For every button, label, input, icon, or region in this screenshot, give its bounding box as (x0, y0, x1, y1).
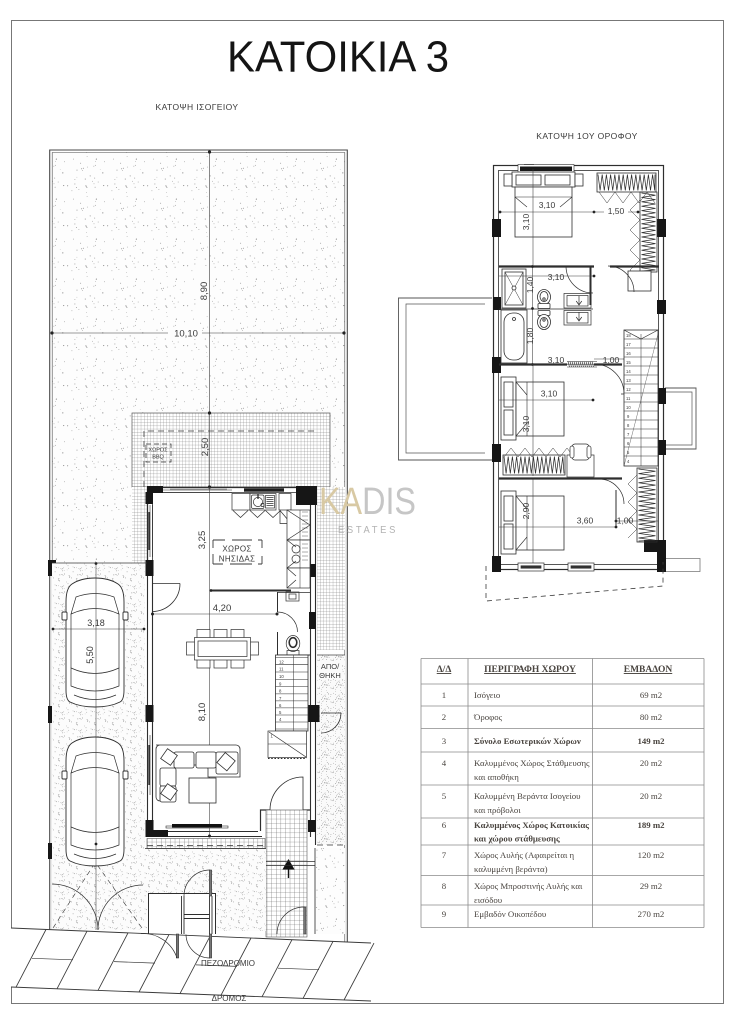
svg-text:ΠΕΡΙΓΡΑΦΗ ΧΩΡΟΥ: ΠΕΡΙΓΡΑΦΗ ΧΩΡΟΥ (484, 665, 576, 675)
svg-text:Σύνολο Εσωτερικών Χώρων: Σύνολο Εσωτερικών Χώρων (474, 736, 581, 746)
svg-text:149 m2: 149 m2 (637, 736, 665, 746)
svg-text:KADIS: KADIS (319, 481, 416, 523)
svg-text:ΚΑΤΟΨΗ ΙΣΟΓΕΙΟΥ: ΚΑΤΟΨΗ ΙΣΟΓΕΙΟΥ (156, 102, 239, 112)
svg-text:3,10: 3,10 (521, 415, 531, 432)
svg-text:120 m2: 120 m2 (638, 850, 665, 860)
svg-text:ΝΗΣΙΔΑΣ: ΝΗΣΙΔΑΣ (219, 555, 255, 564)
svg-text:1,00: 1,00 (603, 355, 620, 365)
svg-text:BBQ: BBQ (152, 455, 164, 461)
svg-text:10: 10 (279, 674, 284, 679)
svg-text:3,25: 3,25 (197, 531, 208, 550)
svg-text:29 m2: 29 m2 (640, 881, 662, 891)
svg-text:Εμβαδόν Οικοπέδου: Εμβαδόν Οικοπέδου (474, 909, 546, 919)
svg-text:8,90: 8,90 (199, 282, 210, 301)
svg-text:ΧΩΡΟΣ: ΧΩΡΟΣ (222, 545, 251, 554)
svg-text:1,80: 1,80 (525, 327, 535, 344)
svg-text:και πρόβολοι: και πρόβολοι (474, 805, 521, 815)
svg-text:ΔΡΟΜΟΣ: ΔΡΟΜΟΣ (212, 994, 247, 1003)
svg-text:80 m2: 80 m2 (640, 712, 662, 722)
svg-text:3,60: 3,60 (577, 516, 594, 526)
svg-text:69 m2: 69 m2 (640, 690, 662, 700)
svg-text:1: 1 (442, 690, 446, 700)
svg-text:3,10: 3,10 (548, 272, 565, 282)
svg-text:3,10: 3,10 (521, 213, 531, 230)
svg-text:ΑΠΟ/: ΑΠΟ/ (321, 662, 340, 671)
svg-text:2,50: 2,50 (200, 438, 211, 457)
svg-text:9: 9 (442, 909, 447, 919)
svg-text:και αποθήκη: και αποθήκη (474, 772, 519, 782)
svg-text:3,10: 3,10 (541, 389, 558, 399)
svg-text:Χώρος Μπροστινής Αυλής και: Χώρος Μπροστινής Αυλής και (474, 881, 583, 891)
svg-text:Καλυμμένος Χώρος Στάθμευσης: Καλυμμένος Χώρος Στάθμευσης (474, 758, 590, 768)
svg-text:12: 12 (279, 660, 284, 665)
svg-text:8,10: 8,10 (197, 703, 208, 722)
svg-text:εισόδου: εισόδου (474, 895, 502, 905)
svg-text:6: 6 (442, 820, 447, 830)
svg-text:13: 13 (626, 378, 631, 383)
svg-text:ΘΗΚΗ: ΘΗΚΗ (319, 671, 341, 680)
svg-text:5: 5 (442, 791, 447, 801)
svg-text:καλυμμένη βεράντα): καλυμμένη βεράντα) (474, 864, 548, 874)
svg-text:4: 4 (442, 758, 447, 768)
svg-text:ESTATES: ESTATES (338, 524, 398, 536)
svg-text:270 m2: 270 m2 (638, 909, 665, 919)
svg-text:ΚΑΤΟΙΚΙΑ 3: ΚΑΤΟΙΚΙΑ 3 (227, 33, 449, 82)
svg-text:Όροφος: Όροφος (473, 712, 503, 722)
svg-text:20 m2: 20 m2 (640, 758, 662, 768)
svg-text:8: 8 (442, 881, 447, 891)
svg-text:5,50: 5,50 (85, 646, 95, 664)
svg-text:Καλυμμένος Χώρος Κατοικίας: Καλυμμένος Χώρος Κατοικίας (474, 820, 589, 830)
svg-text:ΧΩΡΟΣ: ΧΩΡΟΣ (148, 448, 168, 454)
svg-text:2,90: 2,90 (521, 502, 531, 519)
svg-text:14: 14 (626, 369, 631, 374)
svg-text:17: 17 (626, 342, 631, 347)
svg-text:και χώρου στάθμευσης: και χώρου στάθμευσης (474, 834, 560, 844)
svg-text:20 m2: 20 m2 (640, 791, 662, 801)
svg-text:10: 10 (626, 405, 631, 410)
svg-text:3: 3 (442, 736, 447, 746)
svg-text:3,10: 3,10 (539, 200, 556, 210)
svg-text:7: 7 (442, 850, 447, 860)
svg-text:11: 11 (279, 667, 284, 672)
svg-text:Χώρος Αυλής (Αφαιρείται η: Χώρος Αυλής (Αφαιρείται η (474, 850, 575, 860)
svg-text:Ισόγειο: Ισόγειο (474, 690, 501, 700)
svg-text:Δ/Δ: Δ/Δ (437, 665, 452, 675)
svg-text:15: 15 (626, 360, 631, 365)
svg-text:ΚΑΤΟΨΗ 1ΟΥ ΟΡΟΦΟΥ: ΚΑΤΟΨΗ 1ΟΥ ΟΡΟΦΟΥ (536, 131, 637, 141)
svg-text:Καλυμμένη Βεράντα Ισογείου: Καλυμμένη Βεράντα Ισογείου (474, 791, 581, 801)
svg-text:4,20: 4,20 (213, 603, 232, 614)
svg-text:3,10: 3,10 (548, 355, 565, 365)
svg-text:1,50: 1,50 (608, 206, 625, 216)
svg-text:ΕΜΒΑΔΟΝ: ΕΜΒΑΔΟΝ (624, 665, 673, 675)
svg-text:2: 2 (442, 712, 446, 722)
svg-text:16: 16 (626, 351, 631, 356)
svg-text:12: 12 (626, 387, 631, 392)
svg-text:189 m2: 189 m2 (637, 820, 665, 830)
svg-text:18: 18 (626, 333, 631, 338)
svg-text:11: 11 (626, 396, 631, 401)
svg-text:10,10: 10,10 (174, 329, 198, 340)
svg-text:1,40: 1,40 (525, 276, 535, 293)
svg-text:ΠΕΖΟΔΡΟΜΙΟ: ΠΕΖΟΔΡΟΜΙΟ (201, 959, 255, 968)
